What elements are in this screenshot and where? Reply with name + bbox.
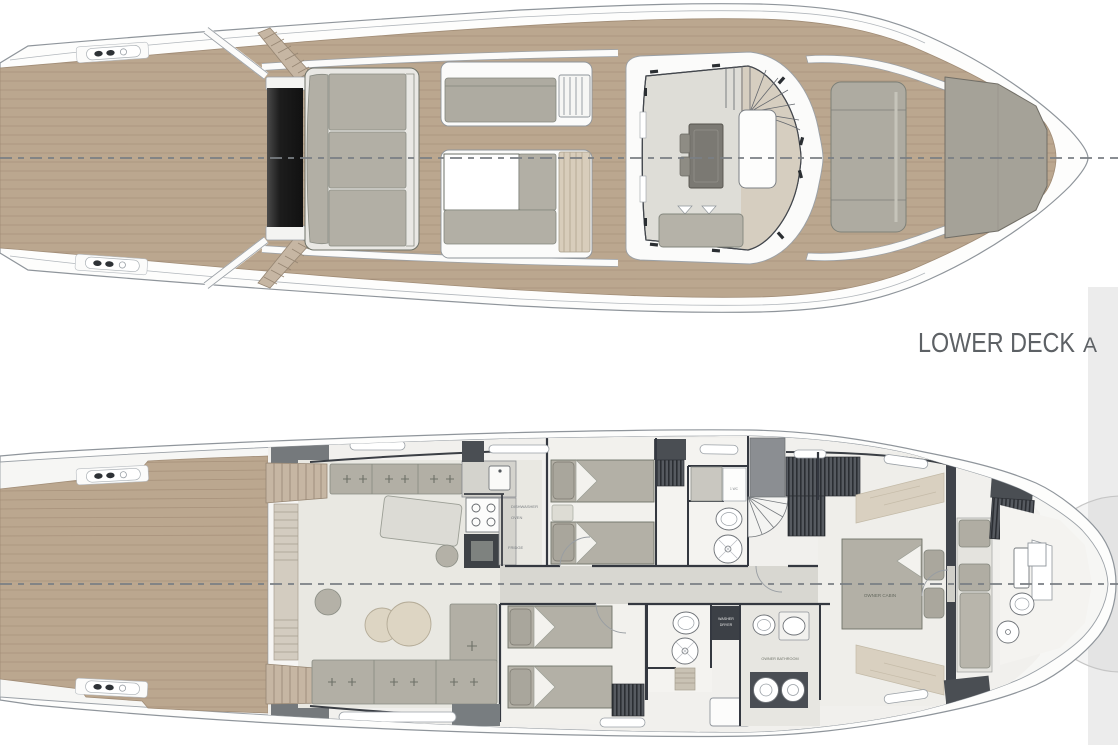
svg-text:FRIDGE: FRIDGE	[508, 545, 523, 550]
svg-text:DRYER: DRYER	[720, 623, 733, 627]
svg-text:DISHWASHER: DISHWASHER	[511, 504, 538, 509]
svg-text:1 WC: 1 WC	[730, 487, 739, 491]
svg-text:A: A	[1083, 334, 1097, 357]
svg-text:OWNER CABIN: OWNER CABIN	[864, 593, 896, 598]
svg-text:WASHER: WASHER	[718, 617, 734, 621]
svg-text:OWNER BATHROOM: OWNER BATHROOM	[761, 657, 798, 661]
svg-text:LOWER DECK: LOWER DECK	[918, 327, 1076, 358]
svg-text:OVEN: OVEN	[511, 515, 522, 520]
